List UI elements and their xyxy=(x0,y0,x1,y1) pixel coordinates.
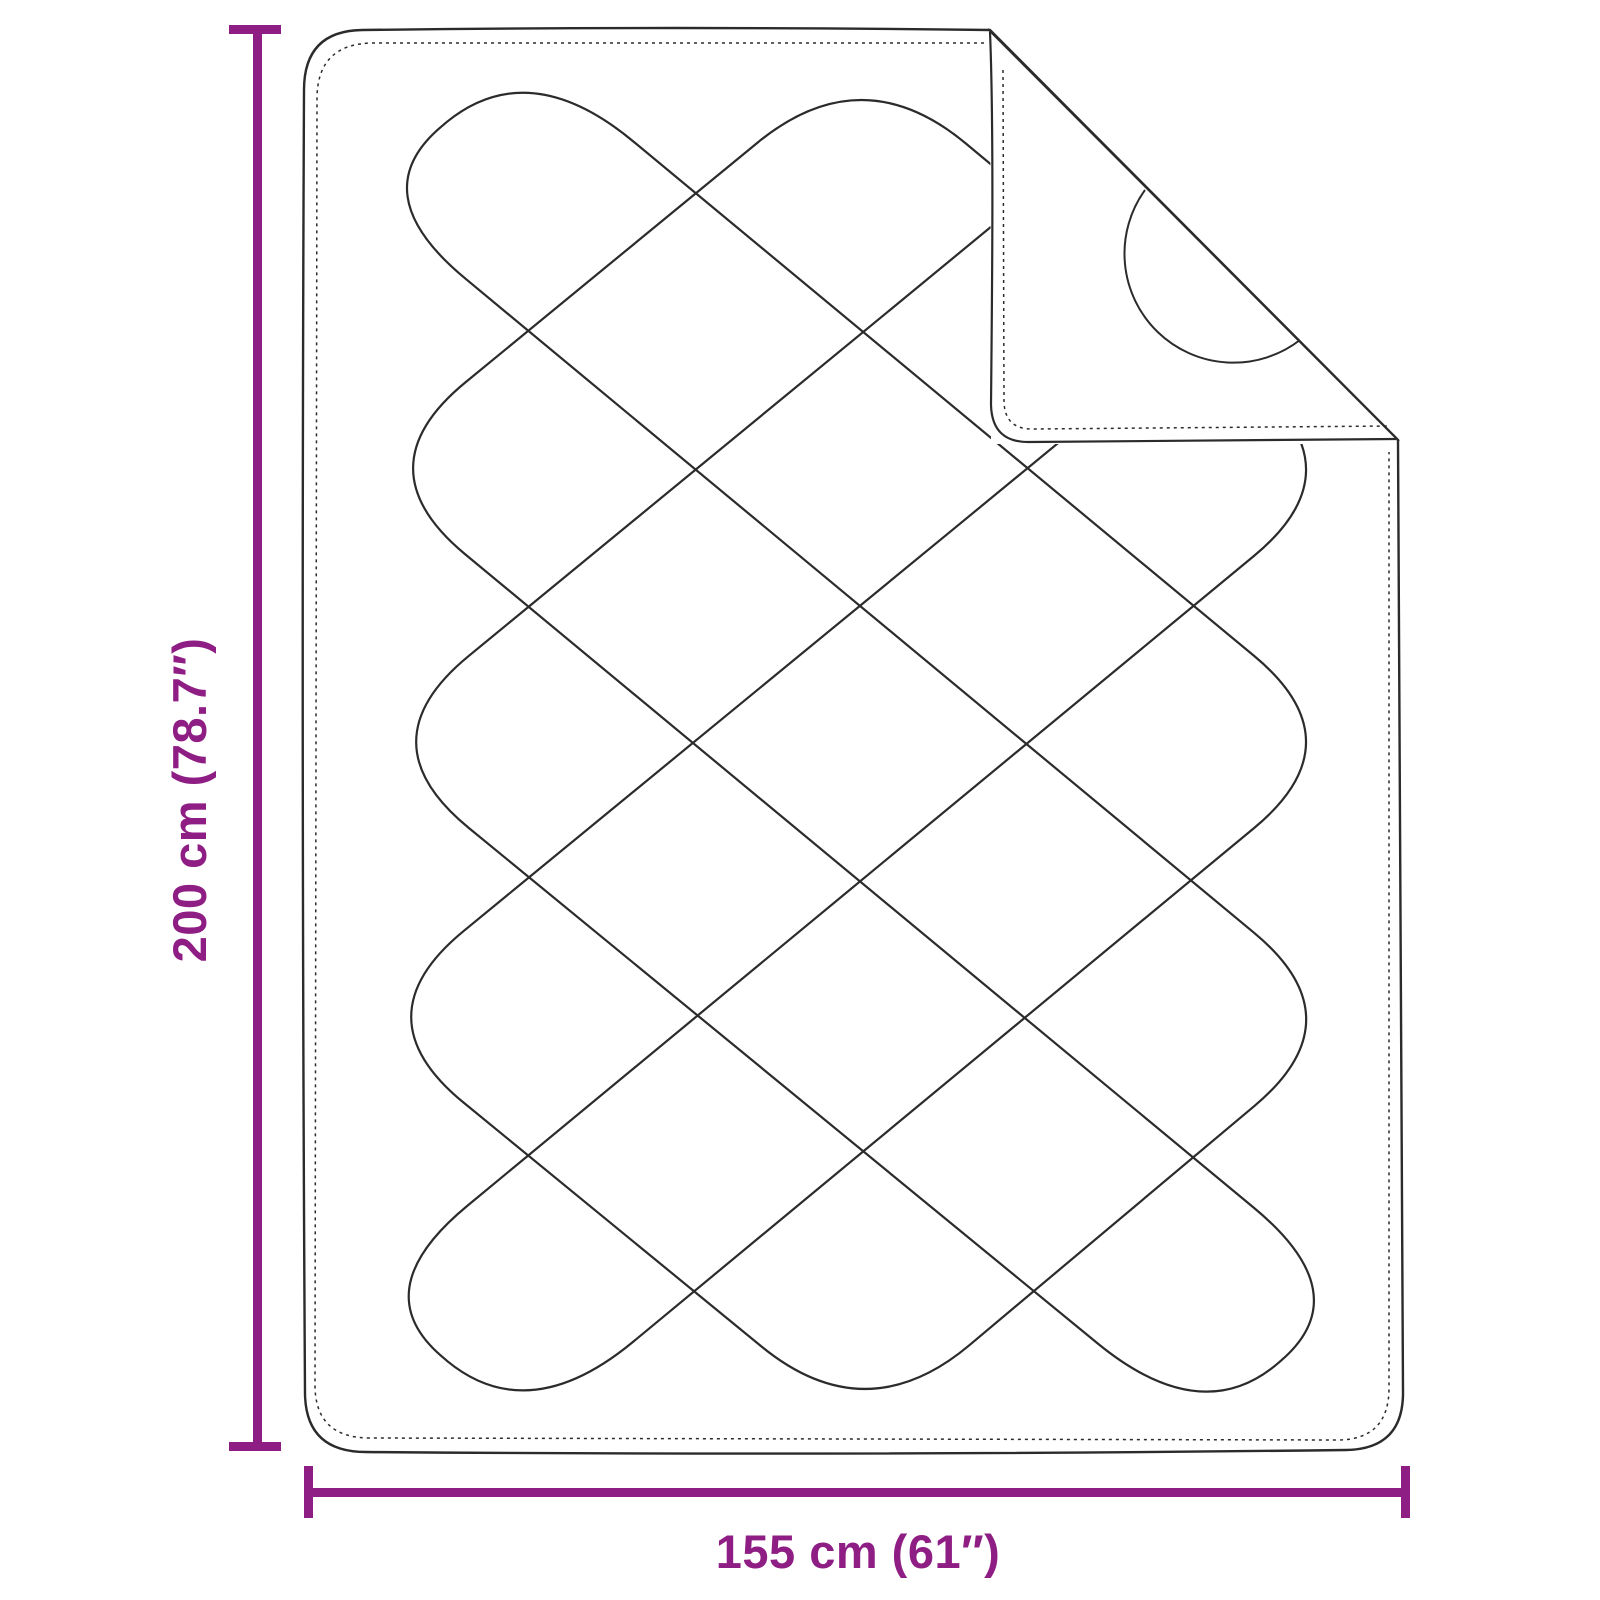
blanket-outline xyxy=(303,28,1403,1454)
width-dimension-left-cap xyxy=(304,1466,313,1518)
width-dimension-line xyxy=(308,1488,1410,1497)
height-dimension-top-cap xyxy=(229,25,281,34)
height-dimension-line xyxy=(253,30,262,1447)
height-dimension-label: 200 cm (78.7″) xyxy=(163,638,216,963)
width-dimension: 155 cm (61″) xyxy=(304,1466,1410,1578)
height-dimension-bottom-cap xyxy=(229,1442,281,1451)
width-dimension-right-cap xyxy=(1401,1466,1410,1518)
width-dimension-label: 155 cm (61″) xyxy=(716,1525,1001,1578)
blanket-outer-edge xyxy=(303,28,1403,1454)
diagram-canvas: 200 cm (78.7″) 155 cm (61″) xyxy=(0,0,1600,1600)
folded-corner xyxy=(988,29,1399,443)
height-dimension: 200 cm (78.7″) xyxy=(163,25,281,1451)
product-dimension-diagram: 200 cm (78.7″) 155 cm (61″) xyxy=(0,0,1600,1600)
